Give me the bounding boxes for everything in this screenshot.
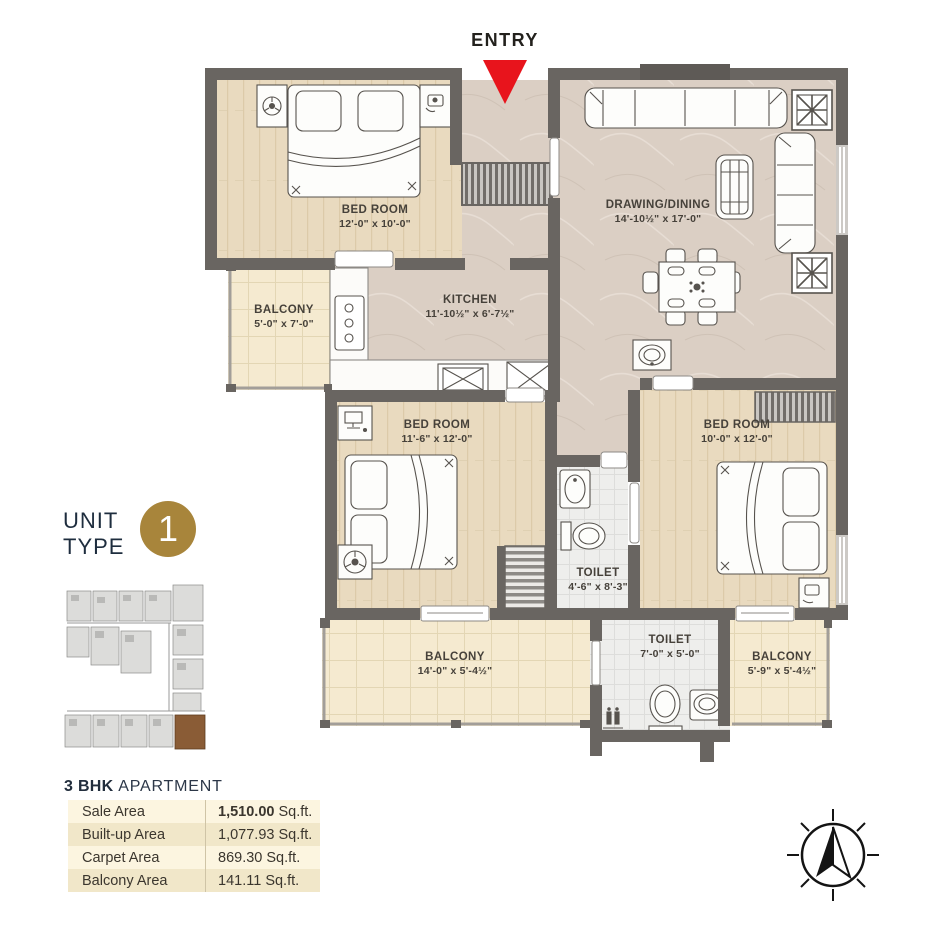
unit-number-badge: 1: [140, 501, 196, 557]
apartment-title: 3 BHK APARTMENT: [64, 778, 223, 796]
north-compass-icon: [783, 801, 883, 905]
staircase-hatch: [505, 546, 545, 618]
area-row-builtup: Built-up Area 1,077.93 Sq.ft.: [68, 823, 320, 846]
bed-icon: [288, 85, 420, 197]
wardrobe-hatch: [755, 392, 835, 422]
nightstand-phone-icon: [420, 85, 452, 127]
sink-icon: [438, 364, 488, 394]
door-icon: [506, 388, 544, 402]
floor-balcony-left: [228, 265, 330, 390]
door-icon: [550, 138, 559, 196]
floor-balcony-bottom: [322, 620, 590, 726]
wash-basin-icon: [633, 340, 671, 370]
area-row-balcony: Balcony Area 141.11 Sq.ft.: [68, 869, 320, 892]
unit-type-label: UNIT TYPE: [63, 508, 124, 560]
coffee-table-icon: [716, 155, 753, 219]
area-row-carpet: Carpet Area 869.30 Sq.ft.: [68, 846, 320, 869]
hob-icon: [335, 296, 364, 350]
floor-plan: [195, 40, 855, 770]
door-icon: [592, 641, 600, 685]
entry-step-hatch: [462, 163, 552, 205]
toilet-wc-icon: [649, 685, 682, 737]
area-table: Sale Area 1,510.00 Sq.ft. Built-up Area …: [68, 800, 320, 892]
key-plan-thumbnail: [57, 583, 209, 751]
floor-corridor: [556, 390, 640, 460]
floorplan-page: { "entry": { "label": "ENTRY" }, "unit_t…: [0, 0, 930, 932]
planter-icon: [792, 90, 832, 130]
desk-icon: [338, 406, 372, 440]
door-icon: [630, 483, 639, 543]
toilet-wc-icon: [561, 522, 605, 550]
side-table-phone-icon: [799, 578, 829, 608]
door-icon: [653, 376, 693, 390]
toilet-basin-icon: [560, 470, 590, 508]
sofa-right-icon: [775, 133, 815, 253]
entry-label: ENTRY: [445, 30, 565, 51]
floor-balcony-right: [730, 620, 830, 726]
door-icon: [335, 251, 393, 267]
door-icon: [601, 452, 627, 468]
nightstand-fan-icon: [257, 85, 287, 127]
planter-icon: [792, 253, 832, 293]
bed-icon: [717, 462, 827, 574]
area-row-sale: Sale Area 1,510.00 Sq.ft.: [68, 800, 320, 823]
fan-icon: [338, 545, 372, 579]
sofa-icon: [585, 88, 787, 128]
